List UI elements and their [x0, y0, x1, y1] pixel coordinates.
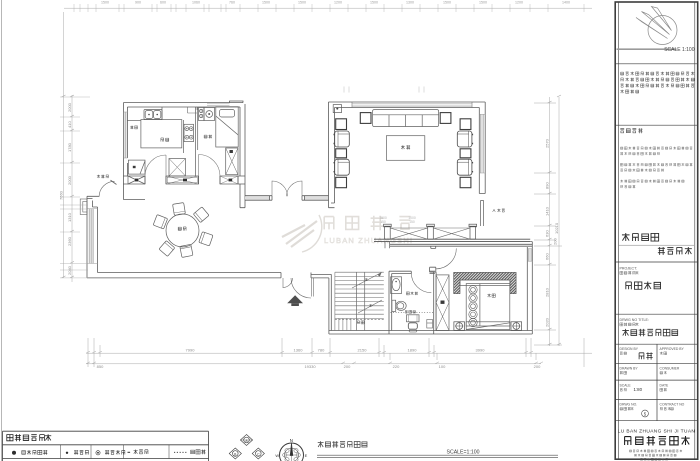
- svg-text:10210: 10210: [554, 222, 559, 234]
- svg-text:SCALE: SCALE: [620, 384, 632, 388]
- svg-text:2040: 2040: [67, 265, 72, 275]
- svg-text:630: 630: [545, 230, 550, 237]
- svg-text:7990: 7990: [186, 348, 196, 353]
- svg-text:1200: 1200: [515, 0, 523, 4]
- svg-text:1060: 1060: [192, 0, 200, 4]
- svg-text:1360: 1360: [294, 348, 304, 353]
- svg-text:1500: 1500: [298, 0, 306, 4]
- svg-text:LUBAN ZHUANGSHI: LUBAN ZHUANGSHI: [324, 236, 413, 245]
- svg-text:2020: 2020: [545, 317, 550, 327]
- svg-text:850: 850: [97, 364, 104, 369]
- svg-text:1310: 1310: [67, 212, 72, 222]
- svg-text:200: 200: [534, 364, 541, 369]
- svg-text:2360: 2360: [67, 236, 72, 246]
- svg-text:1500: 1500: [479, 0, 487, 4]
- svg-text:PROJECT:: PROJECT:: [620, 267, 638, 271]
- svg-text:200: 200: [344, 364, 351, 369]
- svg-text:890: 890: [545, 182, 550, 189]
- svg-text:DRAWN BY: DRAWN BY: [620, 367, 639, 371]
- svg-text:APPROVED BY: APPROVED BY: [660, 347, 685, 351]
- svg-text:1500: 1500: [443, 0, 451, 4]
- svg-text:1780: 1780: [67, 142, 72, 152]
- svg-text:780: 780: [318, 348, 325, 353]
- svg-text:3990: 3990: [476, 348, 486, 353]
- svg-text:100: 100: [439, 364, 446, 369]
- svg-text:150: 150: [409, 220, 415, 224]
- svg-text:410: 410: [67, 121, 72, 128]
- svg-text:1890: 1890: [408, 348, 418, 353]
- svg-text:SCALE 1:100: SCALE 1:100: [664, 47, 695, 53]
- svg-text:DRWG NO TITLE:: DRWG NO TITLE:: [620, 318, 649, 322]
- svg-text:CONSUMER: CONSUMER: [660, 367, 680, 371]
- svg-text:SCALE=1:100: SCALE=1:100: [447, 450, 480, 456]
- svg-text:900: 900: [135, 0, 141, 4]
- svg-text:A: A: [493, 208, 496, 213]
- svg-text:19330: 19330: [304, 364, 316, 369]
- svg-text:1:80: 1:80: [634, 387, 643, 392]
- svg-text:600: 600: [160, 0, 166, 4]
- svg-text:1400: 1400: [562, 0, 570, 4]
- svg-text:1500: 1500: [370, 0, 378, 4]
- svg-text:1200: 1200: [334, 0, 342, 4]
- svg-text:1410: 1410: [545, 206, 550, 216]
- svg-text:2150: 2150: [358, 348, 368, 353]
- svg-text:1500: 1500: [262, 0, 270, 4]
- svg-text:CONTRACT NO: CONTRACT NO: [660, 403, 685, 407]
- svg-text:DATE: DATE: [660, 384, 670, 388]
- svg-text:200: 200: [553, 238, 558, 245]
- svg-text:W: W: [275, 453, 279, 458]
- svg-text:7660: 7660: [59, 190, 64, 200]
- svg-text:150: 150: [380, 220, 386, 224]
- svg-text:2000: 2000: [67, 175, 72, 185]
- svg-text:660: 660: [545, 253, 550, 260]
- svg-text:220: 220: [393, 364, 400, 369]
- svg-text:2000: 2000: [67, 102, 72, 112]
- svg-text:2570: 2570: [545, 138, 550, 148]
- svg-text:LU BAN ZHUANG SHI JI TUAN: LU BAN ZHUANG SHI JI TUAN: [618, 429, 696, 435]
- svg-text:2810: 2810: [545, 287, 550, 297]
- svg-text:E: E: [305, 453, 308, 458]
- svg-text:760: 760: [229, 0, 235, 4]
- svg-text:1300: 1300: [406, 0, 414, 4]
- svg-text:DRWG NO.: DRWG NO.: [620, 403, 638, 407]
- svg-text:1500: 1500: [101, 0, 109, 4]
- svg-text:DESIGN BY: DESIGN BY: [620, 347, 639, 351]
- svg-text:N: N: [290, 438, 293, 443]
